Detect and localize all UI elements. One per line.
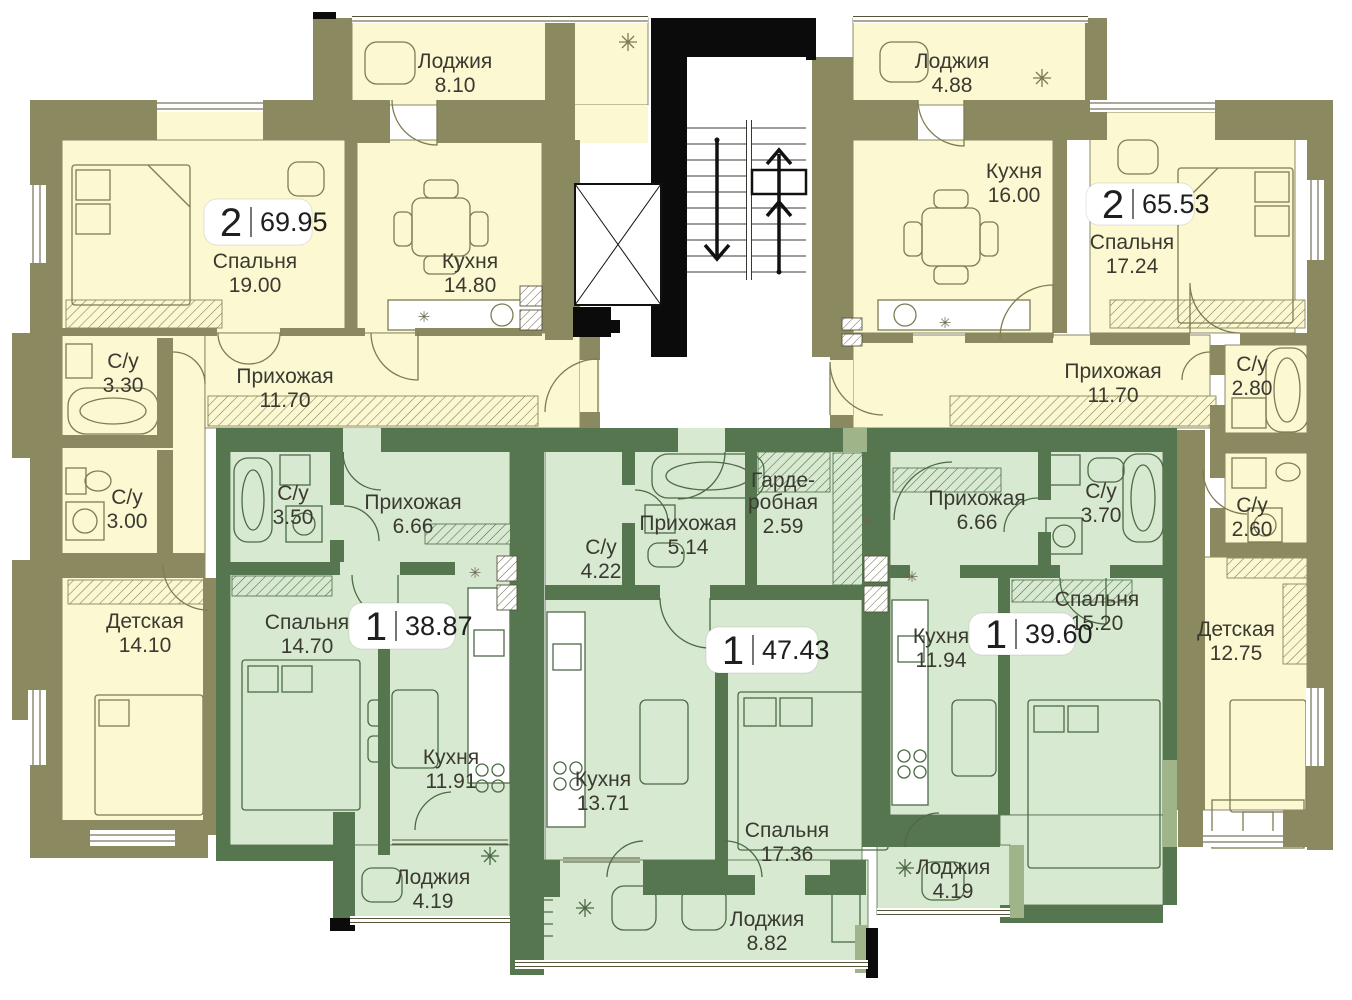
washer-icon: ✳ xyxy=(469,565,482,582)
room-label-a-wc2: С/у3.00 xyxy=(107,486,148,533)
room-label-c-wc: С/у3.50 xyxy=(273,482,314,529)
washer-icon: ✳ xyxy=(939,315,952,332)
room-label-a-wc1: С/у3.30 xyxy=(103,350,144,397)
apartment-total-area: 39.60 xyxy=(1025,619,1093,649)
apartment-total-area: 65.53 xyxy=(1142,189,1210,219)
washer-icon: ✳ xyxy=(418,309,431,326)
apartment-rooms-count: 1 xyxy=(985,613,1007,657)
apartment-badge-a[interactable]: 269.95 xyxy=(204,199,328,245)
room-label-a-kitchen: Кухня14.80 xyxy=(442,250,498,297)
apartment-total-area: 47.43 xyxy=(762,635,830,665)
staircase xyxy=(687,57,806,357)
apartment-total-area: 38.87 xyxy=(405,611,473,641)
apartment-rooms-count: 1 xyxy=(722,629,744,673)
apartment-rooms-count: 2 xyxy=(1102,183,1124,227)
room-label-d-wc: С/у4.22 xyxy=(581,536,622,583)
room-label-b-wc1: С/у2.80 xyxy=(1232,353,1273,400)
apartment-total-area: 69.95 xyxy=(260,207,328,237)
room-label-e-kitchen: Кухня11.94 xyxy=(913,625,969,672)
room-label-c-kitchen: Кухня11.91 xyxy=(423,746,479,793)
floor-plan-page: Лоджия8.10Спальня19.00Кухня14.80Прихожая… xyxy=(0,0,1352,1000)
apartment-rooms-count: 2 xyxy=(220,201,242,245)
apartment-badge-c[interactable]: 138.87 xyxy=(349,603,473,649)
washer-icon: ✳ xyxy=(906,569,919,586)
apartment-badge-d[interactable]: 147.43 xyxy=(706,627,830,673)
room-label-b-kitchen: Кухня16.00 xyxy=(986,160,1042,207)
room-label-e-wc: С/у3.70 xyxy=(1081,480,1122,527)
floor-plan-canvas: Лоджия8.10Спальня19.00Кухня14.80Прихожая… xyxy=(0,0,1352,1000)
elevator xyxy=(575,184,661,305)
apartment-badge-b[interactable]: 265.53 xyxy=(1086,183,1210,227)
apartment-rooms-count: 1 xyxy=(365,605,387,649)
room-label-d-kitchen: Кухня13.71 xyxy=(575,768,631,815)
washer-icon: ✳ xyxy=(862,513,875,530)
room-label-b-wc2: С/у2.60 xyxy=(1232,494,1273,541)
